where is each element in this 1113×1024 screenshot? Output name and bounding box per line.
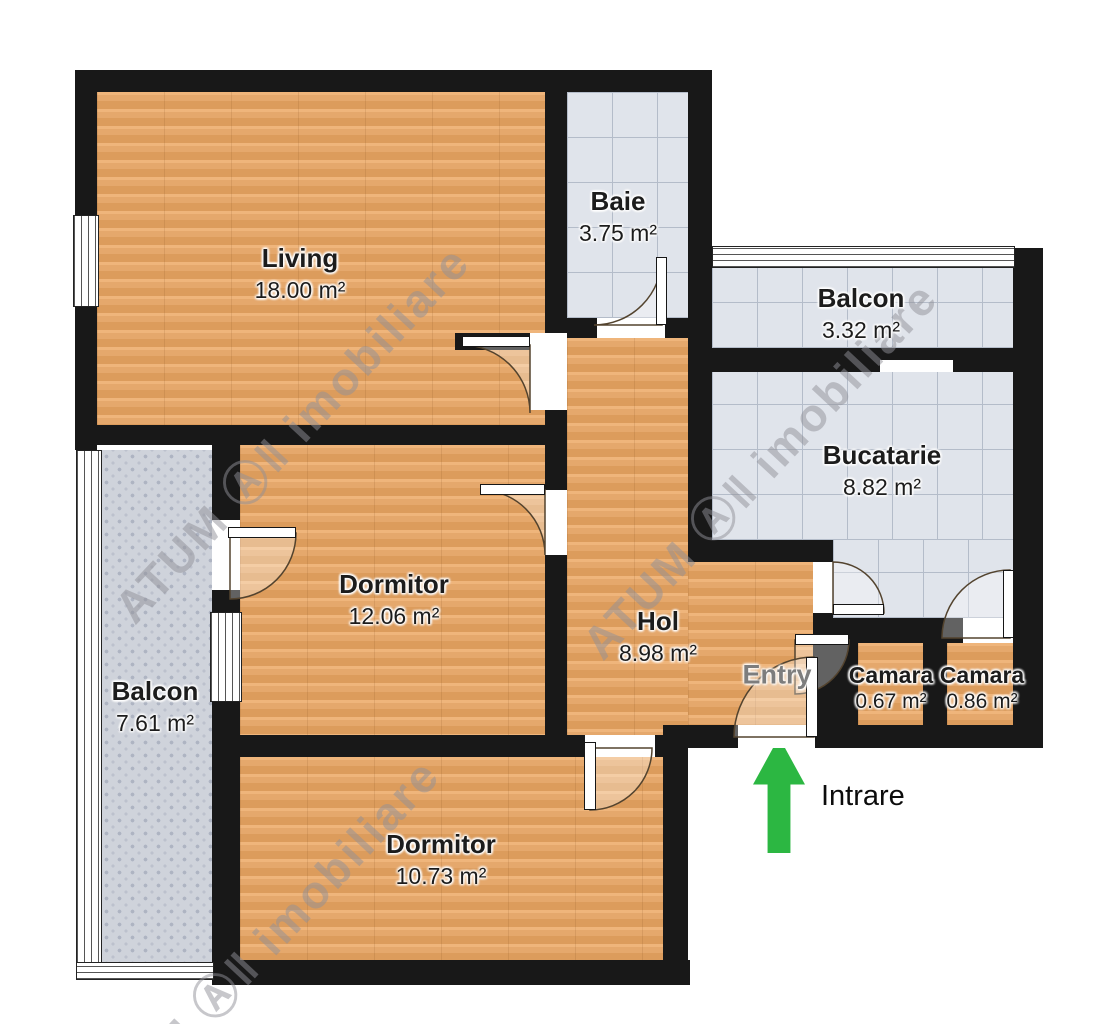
living-door-arc <box>462 345 530 413</box>
room-area: 8.98 m² <box>619 638 697 669</box>
room-label-dormitor-bottom: Dormitor 10.73 m² <box>386 828 496 892</box>
room-name: Balcon <box>112 675 199 708</box>
baie-door-arc <box>594 257 662 325</box>
room-name: Dormitor <box>339 568 449 601</box>
entrance-label: Intrare <box>821 780 905 813</box>
floor-plan: Living 18.00 m² Baie 3.75 m² Balcon 3.32… <box>0 0 1113 1024</box>
room-label-balcon-top: Balcon 3.32 m² <box>818 282 905 346</box>
room-name: Camara <box>849 661 933 689</box>
camara-2-door-leaf <box>1003 570 1014 638</box>
room-area: 18.00 m² <box>255 275 346 306</box>
room-name: Bucatarie <box>823 439 942 472</box>
baie-door-leaf <box>656 257 667 325</box>
room-area: 0.67 m² <box>849 689 933 715</box>
entry-label: Entry <box>742 660 811 691</box>
living-door-leaf <box>462 336 530 347</box>
dormitor-bottom-door-arc <box>590 748 652 810</box>
bucatarie-door-leaf <box>833 604 884 615</box>
room-label-living: Living 18.00 m² <box>255 242 346 306</box>
dormitor-mid-door-arc <box>480 490 545 555</box>
balcon-left-door-leaf <box>228 527 296 538</box>
room-name: Balcon <box>818 282 905 315</box>
room-area: 8.82 m² <box>823 472 942 503</box>
door-arcs <box>0 0 1113 1024</box>
room-label-camara-2: Camara 0.86 m² <box>940 661 1024 715</box>
room-label-hol: Hol 8.98 m² <box>619 605 697 669</box>
room-name: Living <box>255 242 346 275</box>
room-area: 0.86 m² <box>940 689 1024 715</box>
room-label-camara-1: Camara 0.67 m² <box>849 661 933 715</box>
room-name: Camara <box>940 661 1024 689</box>
room-area: 3.32 m² <box>818 315 905 346</box>
camara-2-door-arc <box>942 570 1010 638</box>
balcon-left-door-arc <box>230 533 296 599</box>
dormitor-mid-door-leaf <box>480 484 545 495</box>
room-label-balcon-left: Balcon 7.61 m² <box>112 675 199 739</box>
room-area: 10.73 m² <box>386 861 496 892</box>
room-label-baie: Baie 3.75 m² <box>579 185 657 249</box>
room-name: Baie <box>579 185 657 218</box>
camara-1-door-leaf <box>795 634 849 645</box>
room-label-bucatarie: Bucatarie 8.82 m² <box>823 439 942 503</box>
room-name: Hol <box>619 605 697 638</box>
room-area: 12.06 m² <box>339 601 449 632</box>
room-name: Dormitor <box>386 828 496 861</box>
room-label-dormitor-mid: Dormitor 12.06 m² <box>339 568 449 632</box>
room-area: 7.61 m² <box>112 708 199 739</box>
dormitor-bottom-door-leaf <box>584 742 596 810</box>
room-area: 3.75 m² <box>579 218 657 249</box>
